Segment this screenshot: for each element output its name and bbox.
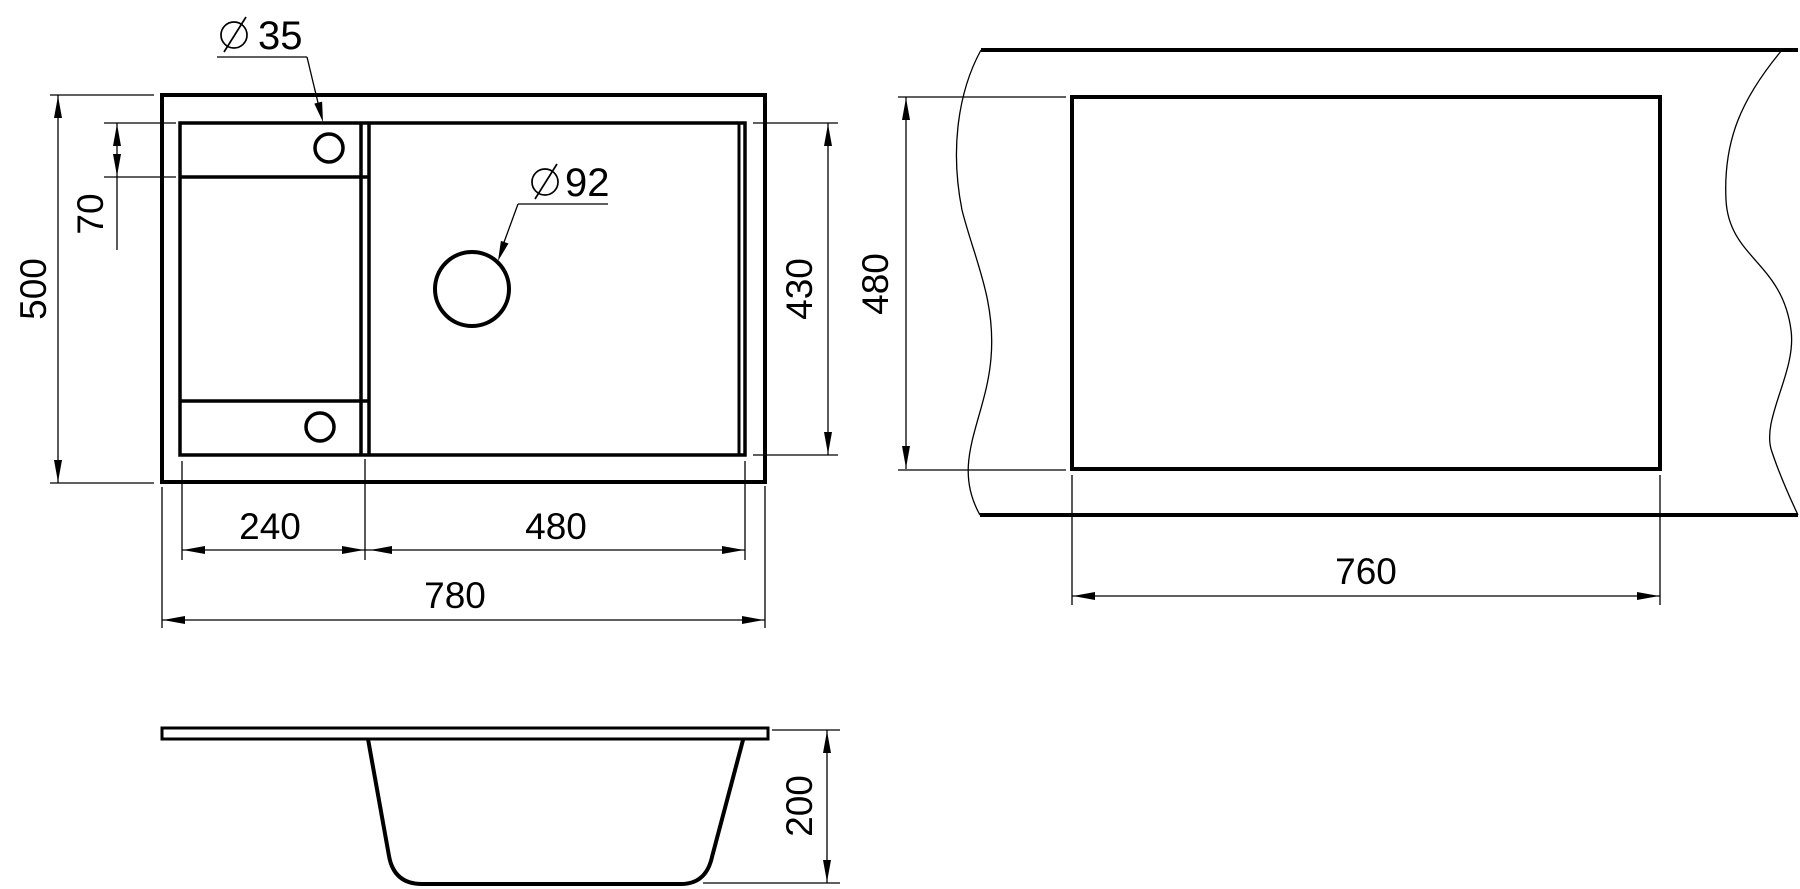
hole-92-value: 92 [565,161,610,205]
hole-35-value: 35 [258,14,303,58]
dim-cutout-depth: 480 [855,97,1066,470]
dim-arrowhead-right [742,616,764,624]
break-line-left [956,50,991,515]
dim-bowl-width-label: 240 [239,506,301,547]
drain-hole [435,252,509,326]
plan-view: 35 92 500 [13,14,838,628]
dim-arrowhead-right [1637,592,1659,600]
dim-arrowhead-up [824,124,832,146]
dim-arrowhead-left [163,616,185,624]
dim-total-depth: 500 [13,95,154,483]
dim-arrowhead-down [902,446,910,468]
bowl-profile [368,739,743,884]
dim-inner-depth-label: 430 [779,258,820,320]
section-view: 200 [162,728,840,884]
sink-outer-edge [162,95,765,482]
dim-arrowhead-up [823,731,831,753]
sink-inner-rim [180,123,745,455]
dim-arrowhead-up [113,124,121,146]
cutout-view: 480 760 [855,50,1798,605]
leader-92-diagonal [503,204,518,245]
dim-hole-offset-label: 70 [70,193,111,234]
sink-technical-drawing: 35 92 500 [0,0,1800,889]
dim-arrowhead-up [902,98,910,120]
dim-cutout-width: 760 [1072,475,1660,605]
dim-arrowhead-left [370,546,392,554]
dim-arrowhead-down [113,154,121,176]
dim-arrowhead-right [722,546,744,554]
dim-bowl-depth-label: 200 [779,775,820,837]
dim-cutout-depth-label: 480 [855,253,896,315]
dim-arrowhead-down [54,460,62,482]
dim-arrowhead-down [824,432,832,454]
cutout-rectangle [1072,97,1660,469]
faucet-hole-bottom [306,413,334,441]
hole-label-92: 92 [498,161,610,261]
leader-35-diagonal [307,57,319,107]
leader-92-arrowhead [498,241,509,261]
faucet-hole-top [315,134,343,162]
dim-bottom-segments: 240 480 [182,459,745,560]
dim-total-depth-label: 500 [13,258,54,320]
dim-drain-width-label: 480 [525,506,587,547]
dim-arrowhead-down [823,860,831,882]
hole-label-35: 35 [217,14,323,122]
sink-rim-flange [162,728,768,739]
dim-arrowhead-right [342,546,364,554]
drawing-sheet: 35 92 500 [0,0,1800,889]
dim-total-width-label: 780 [424,575,486,616]
break-line-right [1726,50,1798,515]
dim-arrowhead-left [1073,592,1095,600]
dim-cutout-width-label: 760 [1335,551,1397,592]
dim-arrowhead-up [54,96,62,118]
dim-arrowhead-left [183,546,205,554]
leader-35-arrowhead [314,102,323,122]
